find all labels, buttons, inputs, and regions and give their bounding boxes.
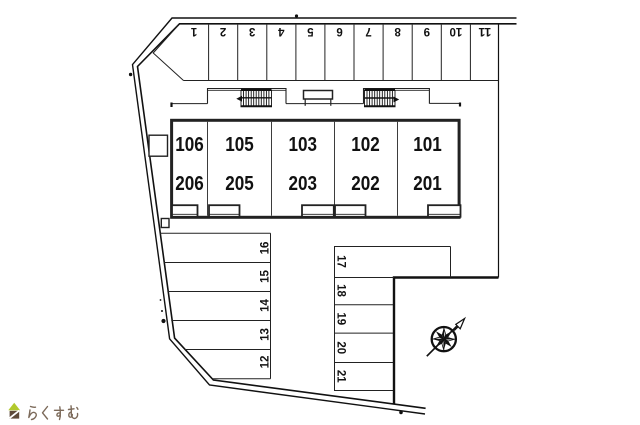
svg-text:16: 16 <box>260 242 272 255</box>
svg-text:1: 1 <box>190 25 197 37</box>
svg-text:19: 19 <box>335 312 347 325</box>
svg-text:14: 14 <box>260 299 272 312</box>
svg-text:15: 15 <box>260 270 272 283</box>
svg-text:106: 106 <box>175 134 204 156</box>
svg-text:101: 101 <box>413 134 442 156</box>
svg-text:102: 102 <box>351 134 380 156</box>
svg-text:17: 17 <box>335 255 347 268</box>
svg-text:206: 206 <box>175 173 204 195</box>
svg-text:6: 6 <box>336 25 342 37</box>
svg-text:203: 203 <box>289 173 318 195</box>
svg-text:10: 10 <box>450 25 463 37</box>
svg-text:202: 202 <box>351 173 380 195</box>
svg-text:20: 20 <box>335 341 347 354</box>
svg-text:2: 2 <box>220 25 226 37</box>
svg-text:4: 4 <box>278 25 285 37</box>
svg-text:3: 3 <box>249 25 255 37</box>
svg-text:201: 201 <box>413 173 442 195</box>
svg-text:11: 11 <box>478 25 491 37</box>
svg-text:105: 105 <box>225 134 254 156</box>
svg-text:13: 13 <box>260 328 272 341</box>
svg-text:12: 12 <box>260 356 272 369</box>
svg-text:103: 103 <box>289 134 318 156</box>
svg-text:8: 8 <box>394 25 401 37</box>
svg-text:9: 9 <box>424 25 430 37</box>
svg-text:205: 205 <box>225 173 254 195</box>
svg-text:5: 5 <box>307 25 314 37</box>
svg-text:18: 18 <box>335 284 347 297</box>
svg-text:7: 7 <box>365 25 371 37</box>
svg-text:21: 21 <box>335 370 347 383</box>
